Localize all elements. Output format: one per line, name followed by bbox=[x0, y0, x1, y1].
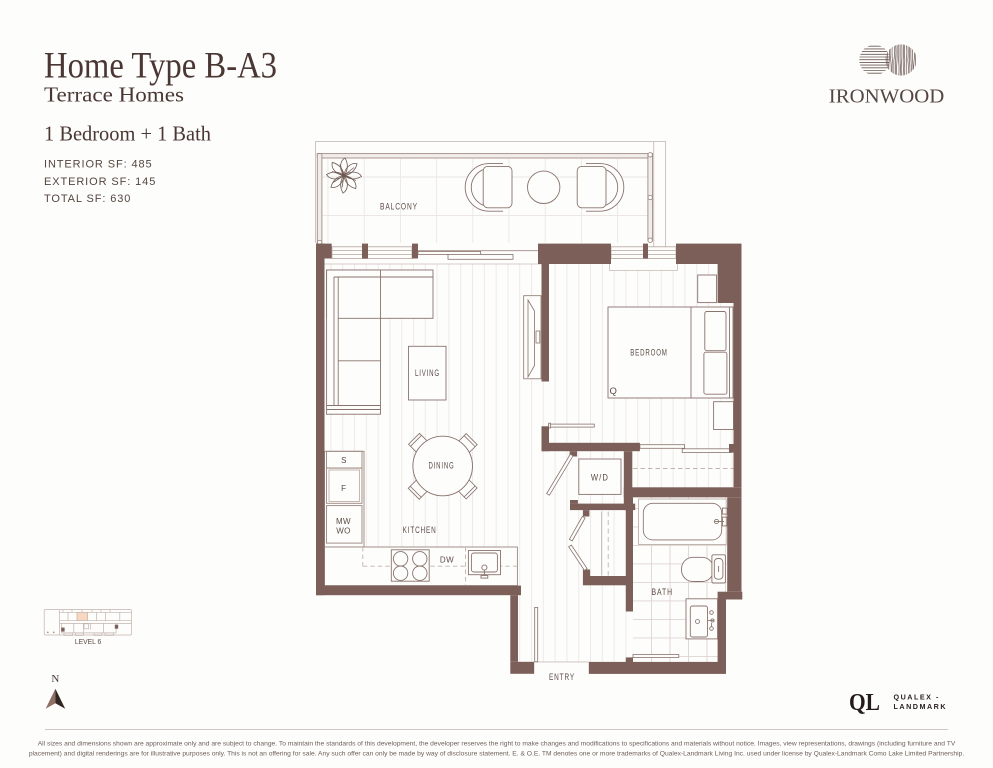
svg-text:IRONWOOD: IRONWOOD bbox=[829, 86, 945, 108]
svg-text:placement) and digital renderi: placement) and digital renderings are fo… bbox=[29, 751, 965, 758]
svg-text:F: F bbox=[341, 484, 346, 493]
svg-text:Q: Q bbox=[610, 386, 617, 397]
svg-text:EXTERIOR SF: 145: EXTERIOR SF: 145 bbox=[44, 176, 156, 188]
svg-text:LANDMARK: LANDMARK bbox=[894, 702, 948, 711]
svg-text:S: S bbox=[341, 456, 347, 465]
svg-text:LIVING: LIVING bbox=[415, 368, 440, 378]
svg-text:LEVEL 6: LEVEL 6 bbox=[75, 639, 101, 646]
svg-text:MW: MW bbox=[336, 517, 351, 526]
svg-text:ENTRY: ENTRY bbox=[549, 672, 575, 682]
svg-text:BEDROOM: BEDROOM bbox=[630, 347, 668, 357]
svg-text:1 Bedroom + 1 Bath: 1 Bedroom + 1 Bath bbox=[44, 122, 211, 146]
svg-text:DW: DW bbox=[440, 556, 454, 565]
svg-text:N: N bbox=[51, 673, 59, 685]
svg-text:BALCONY: BALCONY bbox=[380, 202, 418, 212]
svg-text:QUALEX -: QUALEX - bbox=[894, 693, 940, 702]
svg-text:BATH: BATH bbox=[652, 587, 674, 597]
svg-text:Home Type B-A3: Home Type B-A3 bbox=[44, 46, 277, 87]
svg-text:All sizes and dimensions shown: All sizes and dimensions shown are appro… bbox=[38, 741, 956, 748]
svg-text:INTERIOR SF: 485: INTERIOR SF: 485 bbox=[44, 159, 153, 171]
svg-text:QL: QL bbox=[849, 689, 880, 716]
svg-text:WO: WO bbox=[336, 527, 351, 536]
svg-text:TOTAL SF: 630: TOTAL SF: 630 bbox=[44, 193, 131, 205]
svg-text:W/D: W/D bbox=[591, 473, 609, 483]
svg-text:Terrace Homes: Terrace Homes bbox=[44, 83, 184, 107]
svg-text:KITCHEN: KITCHEN bbox=[403, 525, 437, 535]
svg-text:DINING: DINING bbox=[429, 461, 455, 471]
